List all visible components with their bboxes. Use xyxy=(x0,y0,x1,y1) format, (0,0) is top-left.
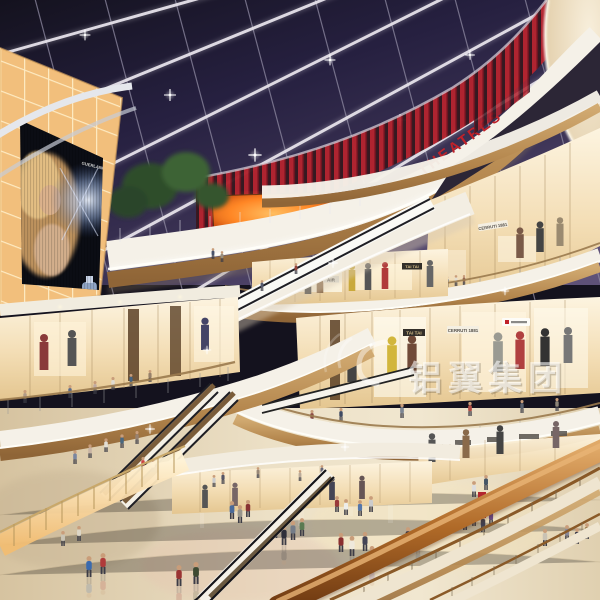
mall-scene-canvas: THEATRES CERRUTI 1881 TAI TAI AIR xyxy=(0,0,600,600)
watermark-text: 铝翼集团 xyxy=(408,359,568,399)
tai-tai-sign-lower: TAI TAI xyxy=(406,331,421,336)
cerruti-sign-lower: CERRUTI 1881 xyxy=(448,328,479,333)
store-sign-red-logo xyxy=(502,318,530,326)
mall-atrium-rendering: THEATRES CERRUTI 1881 TAI TAI AIR xyxy=(0,0,600,600)
tai-tai-sign-upper: TAI TAI xyxy=(405,264,418,269)
